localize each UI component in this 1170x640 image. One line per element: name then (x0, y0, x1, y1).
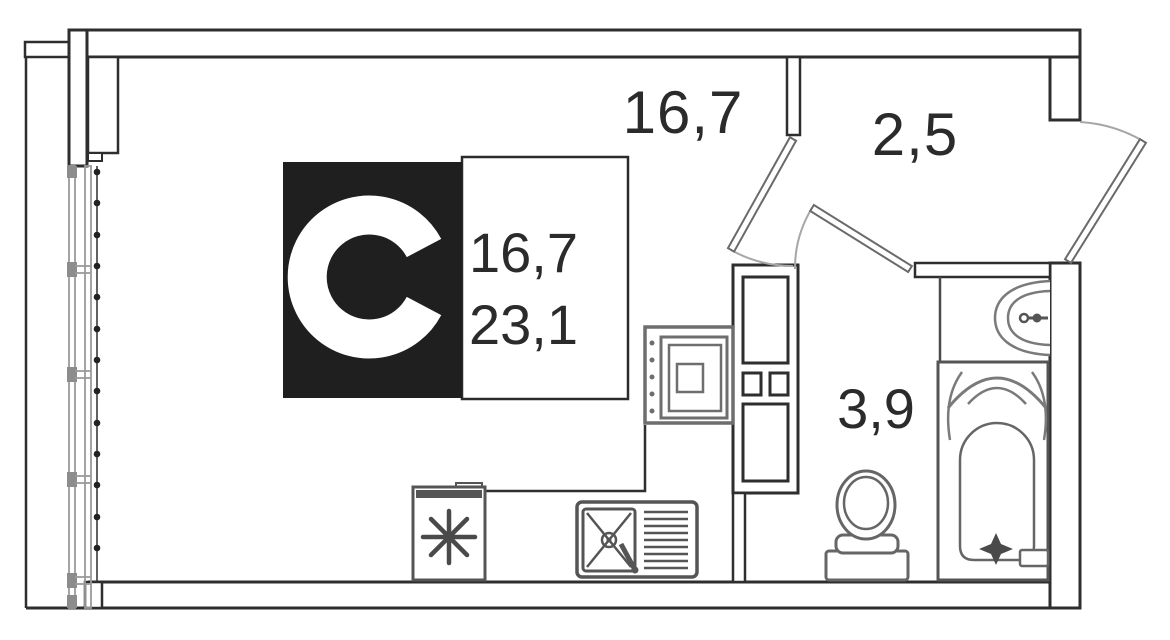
washing-machine-icon (645, 327, 733, 423)
wall-entrance-pier (1050, 57, 1080, 120)
wall-right (1050, 263, 1080, 608)
wall-top (69, 30, 1080, 57)
snowflake-icon (423, 511, 475, 563)
bathtub-icon (938, 362, 1048, 580)
wall-pier-a (69, 30, 87, 166)
wall-partition-hallway (787, 57, 800, 135)
wall-kitchen-bath (733, 493, 745, 582)
bathroom-area-label: 3,9 (837, 377, 915, 440)
wall-pier-b (88, 57, 118, 153)
logo-block: 16,7 23,1 (283, 157, 628, 399)
wall-topleft-stub (25, 42, 69, 57)
logo-total-area: 23,1 (469, 293, 578, 356)
wall-bathroom-top (915, 263, 1050, 277)
ventilation-shaft (733, 265, 798, 493)
living-room-area-label: 16,7 (623, 79, 744, 146)
logo-living-area: 16,7 (469, 221, 578, 284)
wall-pier-b-step (88, 153, 102, 161)
wall-bottom-corner-block (85, 582, 102, 608)
hallway-area-label: 2,5 (872, 101, 958, 168)
refrigerator-icon (413, 483, 485, 580)
kitchen-sink-icon (577, 502, 697, 577)
floor-plan: 16,7 23,1 16,7 2,5 3,9 (0, 0, 1170, 640)
